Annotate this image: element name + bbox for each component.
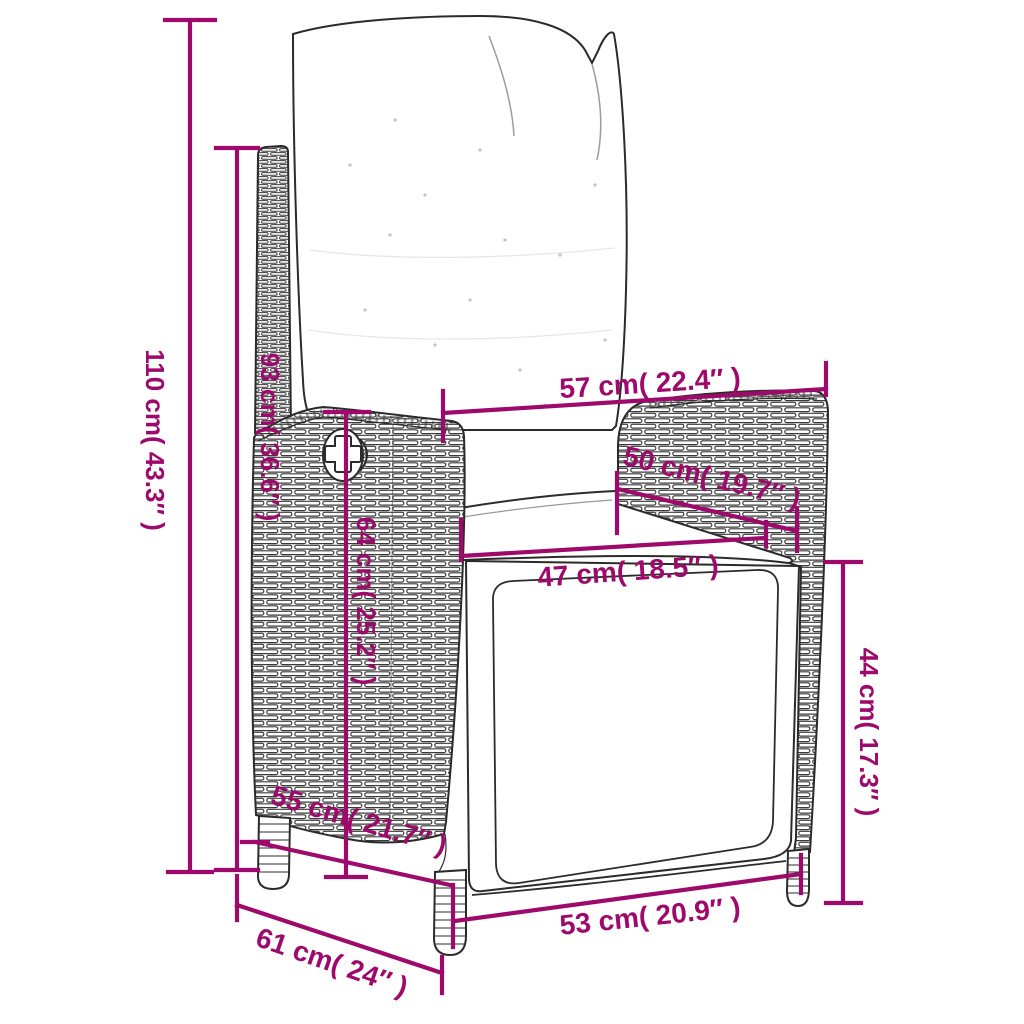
seat-base [466,561,799,891]
back-cushion [293,16,627,430]
dim-base-height-label: 44 cm( 17.3″ ) [854,648,884,817]
front-left-leg [258,816,290,889]
dim-armrest-height-label: 64 cm( 25.2″ ) [351,517,381,686]
dim-total-height-line [165,20,215,872]
product-dimension-image: 110 cm( 43.3″ ) 93 cm( 36.6″ ) 64 cm( 25… [0,0,1024,1024]
dim-front-width-label: 53 cm( 20.9″ ) [558,891,742,941]
dim-total-depth-label: 61 cm( 24″ ) [252,922,412,1003]
dim-backrest-height-label: 93 cm( 36.6″ ) [255,353,285,522]
dim-total-height-label: 110 cm( 43.3″ ) [140,349,170,531]
